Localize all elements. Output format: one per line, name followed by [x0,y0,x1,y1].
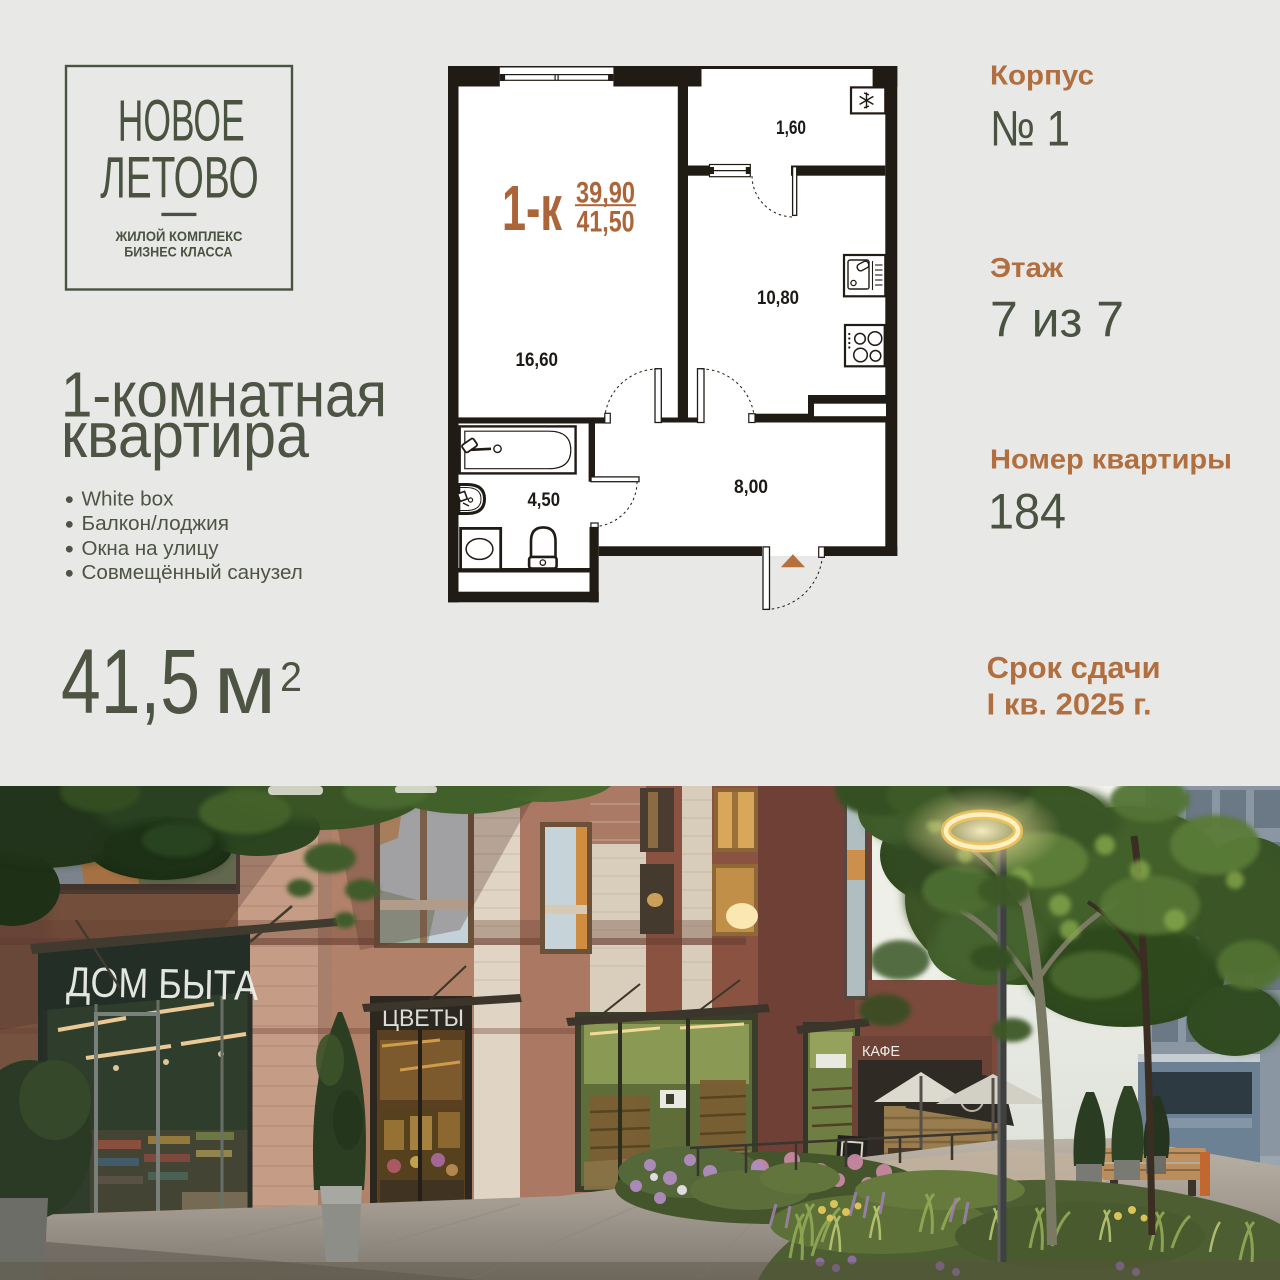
svg-text:Окна на улицу: Окна на улицу [82,538,219,560]
svg-text:ДОМ БЫТА: ДОМ БЫТА [66,958,259,1009]
svg-text:Корпус: Корпус [990,60,1094,91]
svg-text:16,60: 16,60 [516,350,559,371]
svg-text:НОВОЕ: НОВОЕ [118,89,245,154]
svg-text:8,00: 8,00 [734,477,768,498]
svg-text:184: 184 [988,483,1066,539]
svg-text:4,50: 4,50 [528,490,561,511]
svg-text:м: м [214,637,276,731]
svg-text:Срок сдачи: Срок сдачи [987,650,1161,685]
svg-text:2: 2 [280,653,302,700]
svg-text:ЖИЛОЙ КОМПЛЕКС: ЖИЛОЙ КОМПЛЕКС [115,229,243,244]
svg-text:41,50: 41,50 [577,206,635,239]
svg-text:10,80: 10,80 [757,288,799,309]
svg-text:Этаж: Этаж [990,252,1064,283]
svg-text:№ 1: № 1 [990,101,1070,157]
svg-text:І кв. 2025 г.: І кв. 2025 г. [987,687,1152,722]
svg-text:БИЗНЕС КЛАССА: БИЗНЕС КЛАССА [124,245,233,260]
svg-text:квартира: квартира [61,399,309,471]
svg-text:Совмещённый санузел: Совмещённый санузел [82,562,303,584]
svg-text:White box: White box [82,488,174,510]
svg-text:1-к: 1-к [502,172,563,244]
svg-text:7 из 7: 7 из 7 [990,292,1124,348]
svg-text:Номер квартиры: Номер квартиры [990,443,1232,474]
svg-text:Балкон/лоджия: Балкон/лоджия [82,513,230,535]
svg-text:КАФЕ: КАФЕ [862,1043,900,1060]
svg-text:ЛЕТОВО: ЛЕТОВО [100,146,259,211]
svg-text:1,60: 1,60 [776,118,806,139]
svg-text:41,5: 41,5 [61,631,200,733]
